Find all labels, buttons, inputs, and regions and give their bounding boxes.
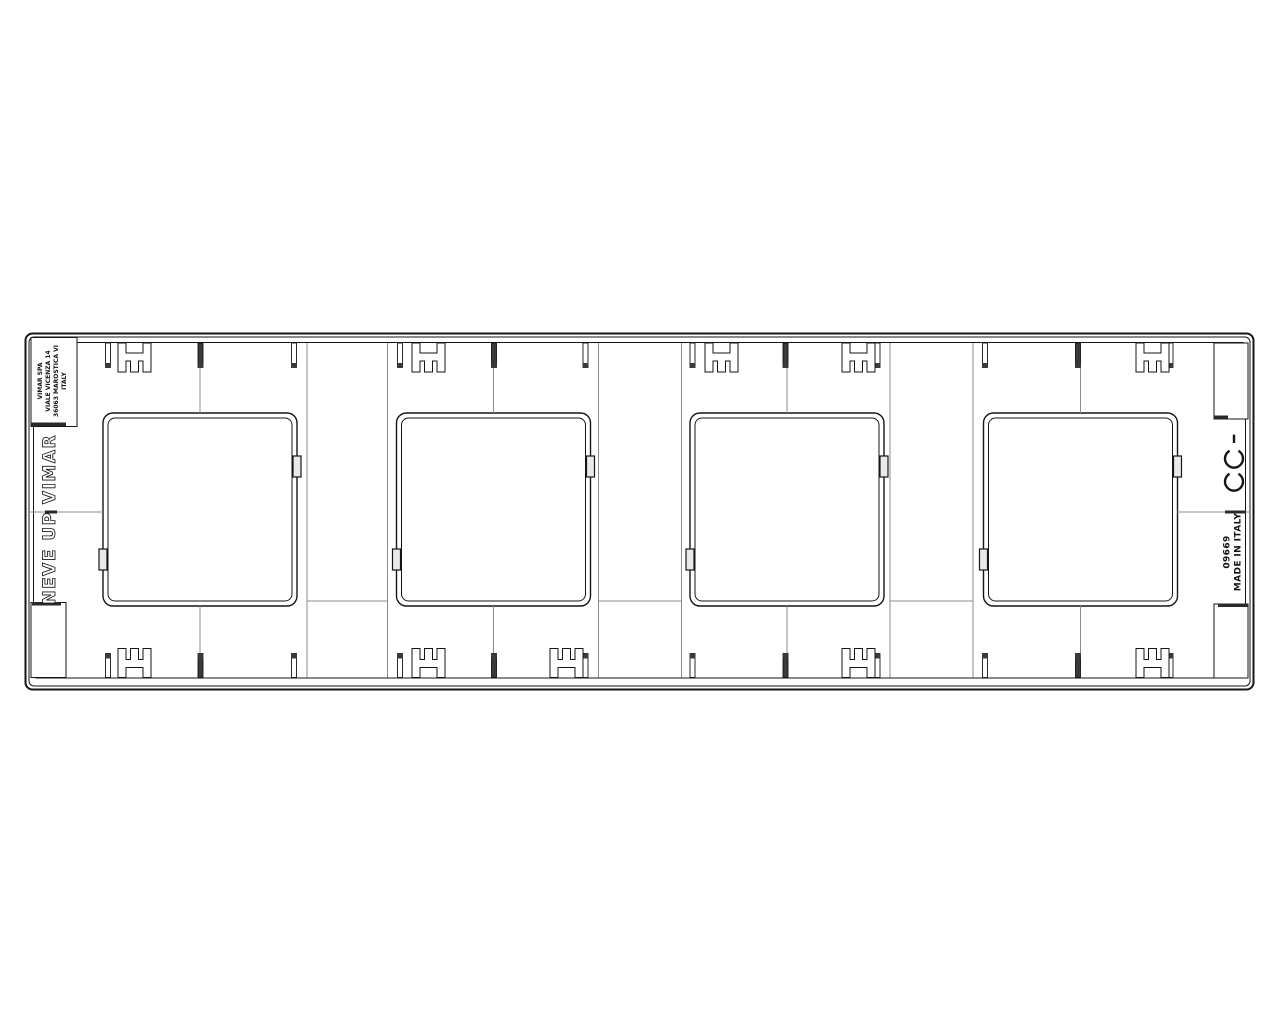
retaining-clip-top xyxy=(1136,343,1169,372)
corner-box-bottom-left xyxy=(31,603,66,678)
fixing-slot-top-foot xyxy=(583,363,589,368)
fixing-slot-bottom-foot xyxy=(105,654,111,659)
product-code-label: 09669 xyxy=(1223,535,1233,568)
manufacturer-line3: 36063 MAROSTICA VI xyxy=(53,345,60,417)
window-opening-inner-1 xyxy=(108,418,292,601)
window-opening-inner-2 xyxy=(402,418,586,601)
ce-mark-icon xyxy=(1225,435,1243,491)
fixing-slot-top-foot xyxy=(291,363,297,368)
fixing-slot-bottom-foot xyxy=(491,654,497,659)
manufacturer-line4: ITALY xyxy=(61,371,68,389)
fixing-slot-bottom-foot xyxy=(198,654,204,659)
retaining-clip-top xyxy=(705,343,738,372)
fixing-slot-bottom-foot xyxy=(982,654,988,659)
window-opening-inner-3 xyxy=(695,418,879,601)
window-latch-right-1 xyxy=(293,456,301,477)
window-latch-right-4 xyxy=(1174,456,1182,477)
retaining-clip-top xyxy=(842,343,875,372)
window-opening-outer-3 xyxy=(690,413,884,606)
fixing-slot-bottom-foot xyxy=(397,654,403,659)
window-latch-right-2 xyxy=(587,456,595,477)
fixing-slot-top-foot xyxy=(198,363,204,368)
fixing-slot-bottom-foot xyxy=(1075,654,1081,659)
faceplate-details xyxy=(29,343,1249,678)
technical-drawing: VIMAR SPA VIALE VICENZA 14 36063 MAROSTI… xyxy=(0,0,1280,1024)
retaining-clip-bottom xyxy=(1136,649,1169,678)
fixing-slot-top-foot xyxy=(982,363,988,368)
fixing-slot-top-foot xyxy=(397,363,403,368)
fixing-slot-top-foot xyxy=(1075,363,1081,368)
drawing-canvas: VIMAR SPA VIALE VICENZA 14 36063 MAROSTI… xyxy=(0,0,1280,1024)
corner-box-edge-mark xyxy=(1218,604,1248,608)
fixing-slot-top-foot xyxy=(690,363,696,368)
retaining-clip-bottom xyxy=(842,649,875,678)
series-label: NEVE UP xyxy=(40,511,60,604)
retaining-clip-bottom xyxy=(118,649,151,678)
manufacturer-address-label: VIMAR SPA VIALE VICENZA 14 36063 MAROSTI… xyxy=(31,338,77,427)
retaining-clip-bottom xyxy=(550,649,583,678)
fixing-slot-bottom-foot xyxy=(783,654,789,659)
corner-box-top-right xyxy=(1214,343,1248,419)
window-opening-inner-4 xyxy=(989,418,1173,601)
window-opening-outer-4 xyxy=(984,413,1178,606)
corner-box-bottom-right xyxy=(1214,604,1248,678)
corner-box-edge-mark xyxy=(1214,416,1228,420)
window-latch-left-1 xyxy=(99,549,107,570)
fixing-slot-top-foot xyxy=(105,363,111,368)
retaining-clip-top xyxy=(412,343,445,372)
faceplate-frame xyxy=(26,334,1254,690)
window-latch-left-4 xyxy=(980,549,988,570)
brand-label: VIMAR xyxy=(40,434,60,504)
manufacturer-line2: VIALE VICENZA 14 xyxy=(45,350,52,411)
retaining-clip-top xyxy=(118,343,151,372)
origin-label: MADE IN ITALY xyxy=(1234,513,1244,592)
fixing-slot-bottom-foot xyxy=(690,654,696,659)
window-opening-outer-2 xyxy=(397,413,591,606)
fixing-slot-top-foot xyxy=(491,363,497,368)
fixing-slot-bottom-foot xyxy=(291,654,297,659)
retaining-clip-bottom xyxy=(412,649,445,678)
window-latch-left-3 xyxy=(686,549,694,570)
manufacturer-line1: VIMAR SPA xyxy=(37,362,44,399)
window-opening-outer-1 xyxy=(103,413,297,606)
window-latch-left-2 xyxy=(393,549,401,570)
fixing-slot-top-foot xyxy=(783,363,789,368)
window-latch-right-3 xyxy=(880,456,888,477)
